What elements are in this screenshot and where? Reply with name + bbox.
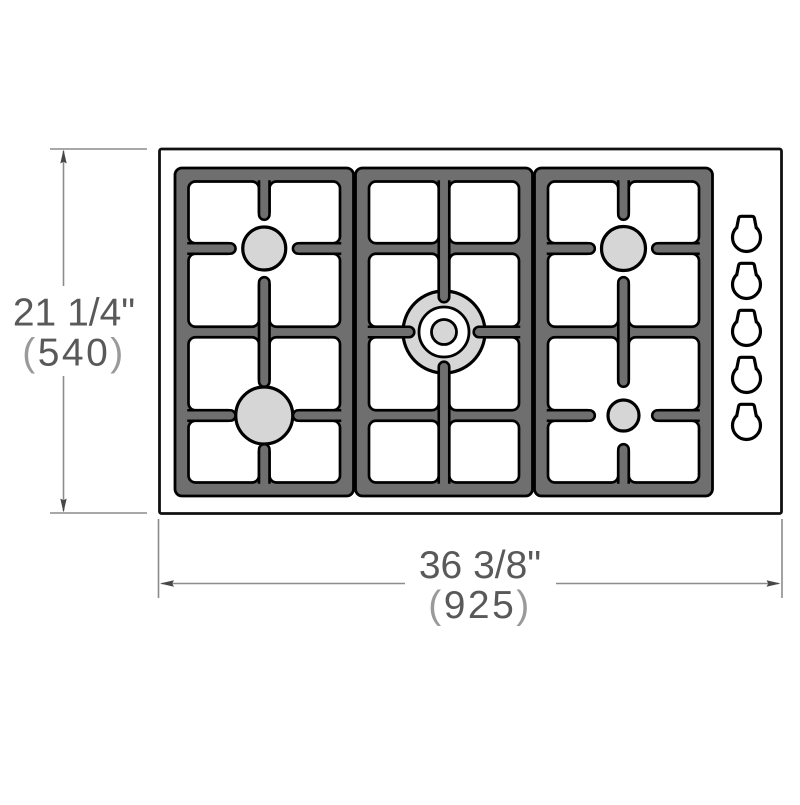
svg-text:(540): (540) <box>22 332 126 375</box>
svg-text:21 1/4": 21 1/4" <box>13 292 135 335</box>
svg-text:36 3/8": 36 3/8" <box>419 544 541 587</box>
svg-text:(925): (925) <box>428 584 532 627</box>
